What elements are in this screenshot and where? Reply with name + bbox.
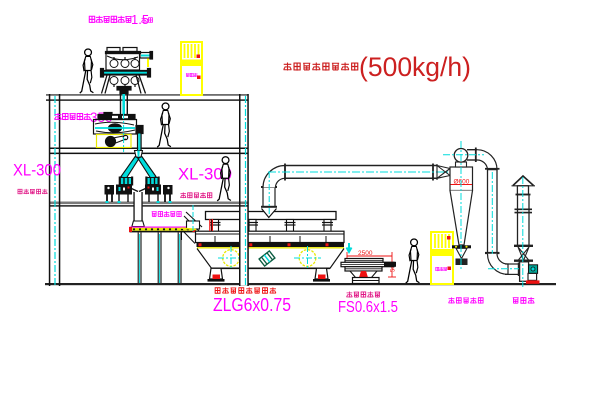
svg-text:1.5: 1.5	[131, 12, 149, 27]
svg-text:FS0.6x1.5: FS0.6x1.5	[338, 299, 398, 316]
svg-text:(500kg/h): (500kg/h)	[359, 52, 471, 82]
svg-text:2500: 2500	[358, 250, 373, 257]
svg-text:Ø600: Ø600	[454, 179, 470, 186]
svg-text:XL-300: XL-300	[13, 161, 61, 180]
svg-text:ZLG6x0.75: ZLG6x0.75	[213, 295, 291, 315]
